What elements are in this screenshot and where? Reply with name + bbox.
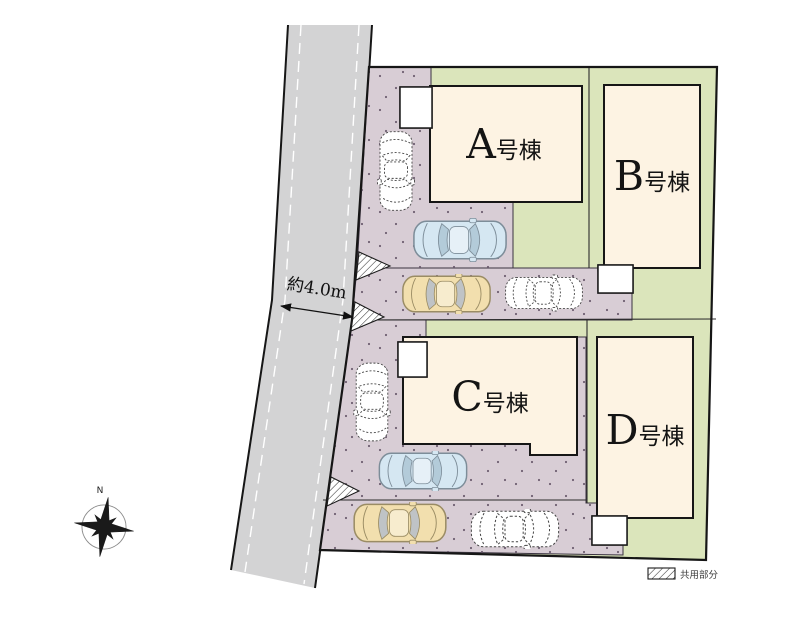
site-plan-drawing: A号棟 B号棟 C号棟 D号棟 約4.0m [0, 0, 804, 636]
north-label: N [97, 486, 104, 496]
legend-label: 共用部分 [680, 569, 719, 581]
building-a: A号棟 [430, 86, 582, 202]
compass-rose: N [70, 486, 138, 561]
building-d: D号棟 [597, 337, 693, 518]
car-blue-a [414, 218, 506, 261]
entrance-tiles-b [598, 265, 633, 293]
car-yellow-middle [403, 274, 490, 315]
site-plan-page: A号棟 B号棟 C号棟 D号棟 約4.0m [0, 0, 804, 636]
building-b: B号棟 [604, 85, 700, 268]
entrance-tiles-d [592, 516, 627, 545]
legend-swatch [648, 568, 675, 579]
car-outline-middle [506, 275, 583, 311]
entrance-tiles-c [398, 342, 427, 377]
car-blue-c [379, 451, 466, 492]
car-yellow-bottom [354, 502, 446, 545]
building-c: C号棟 [403, 337, 577, 455]
entrance-tiles-a [400, 87, 432, 128]
car-outline-bottom [471, 509, 558, 550]
legend: 共用部分 [648, 568, 719, 581]
car-outline-vertical-a [378, 132, 415, 211]
car-outline-vertical-c [354, 363, 390, 441]
